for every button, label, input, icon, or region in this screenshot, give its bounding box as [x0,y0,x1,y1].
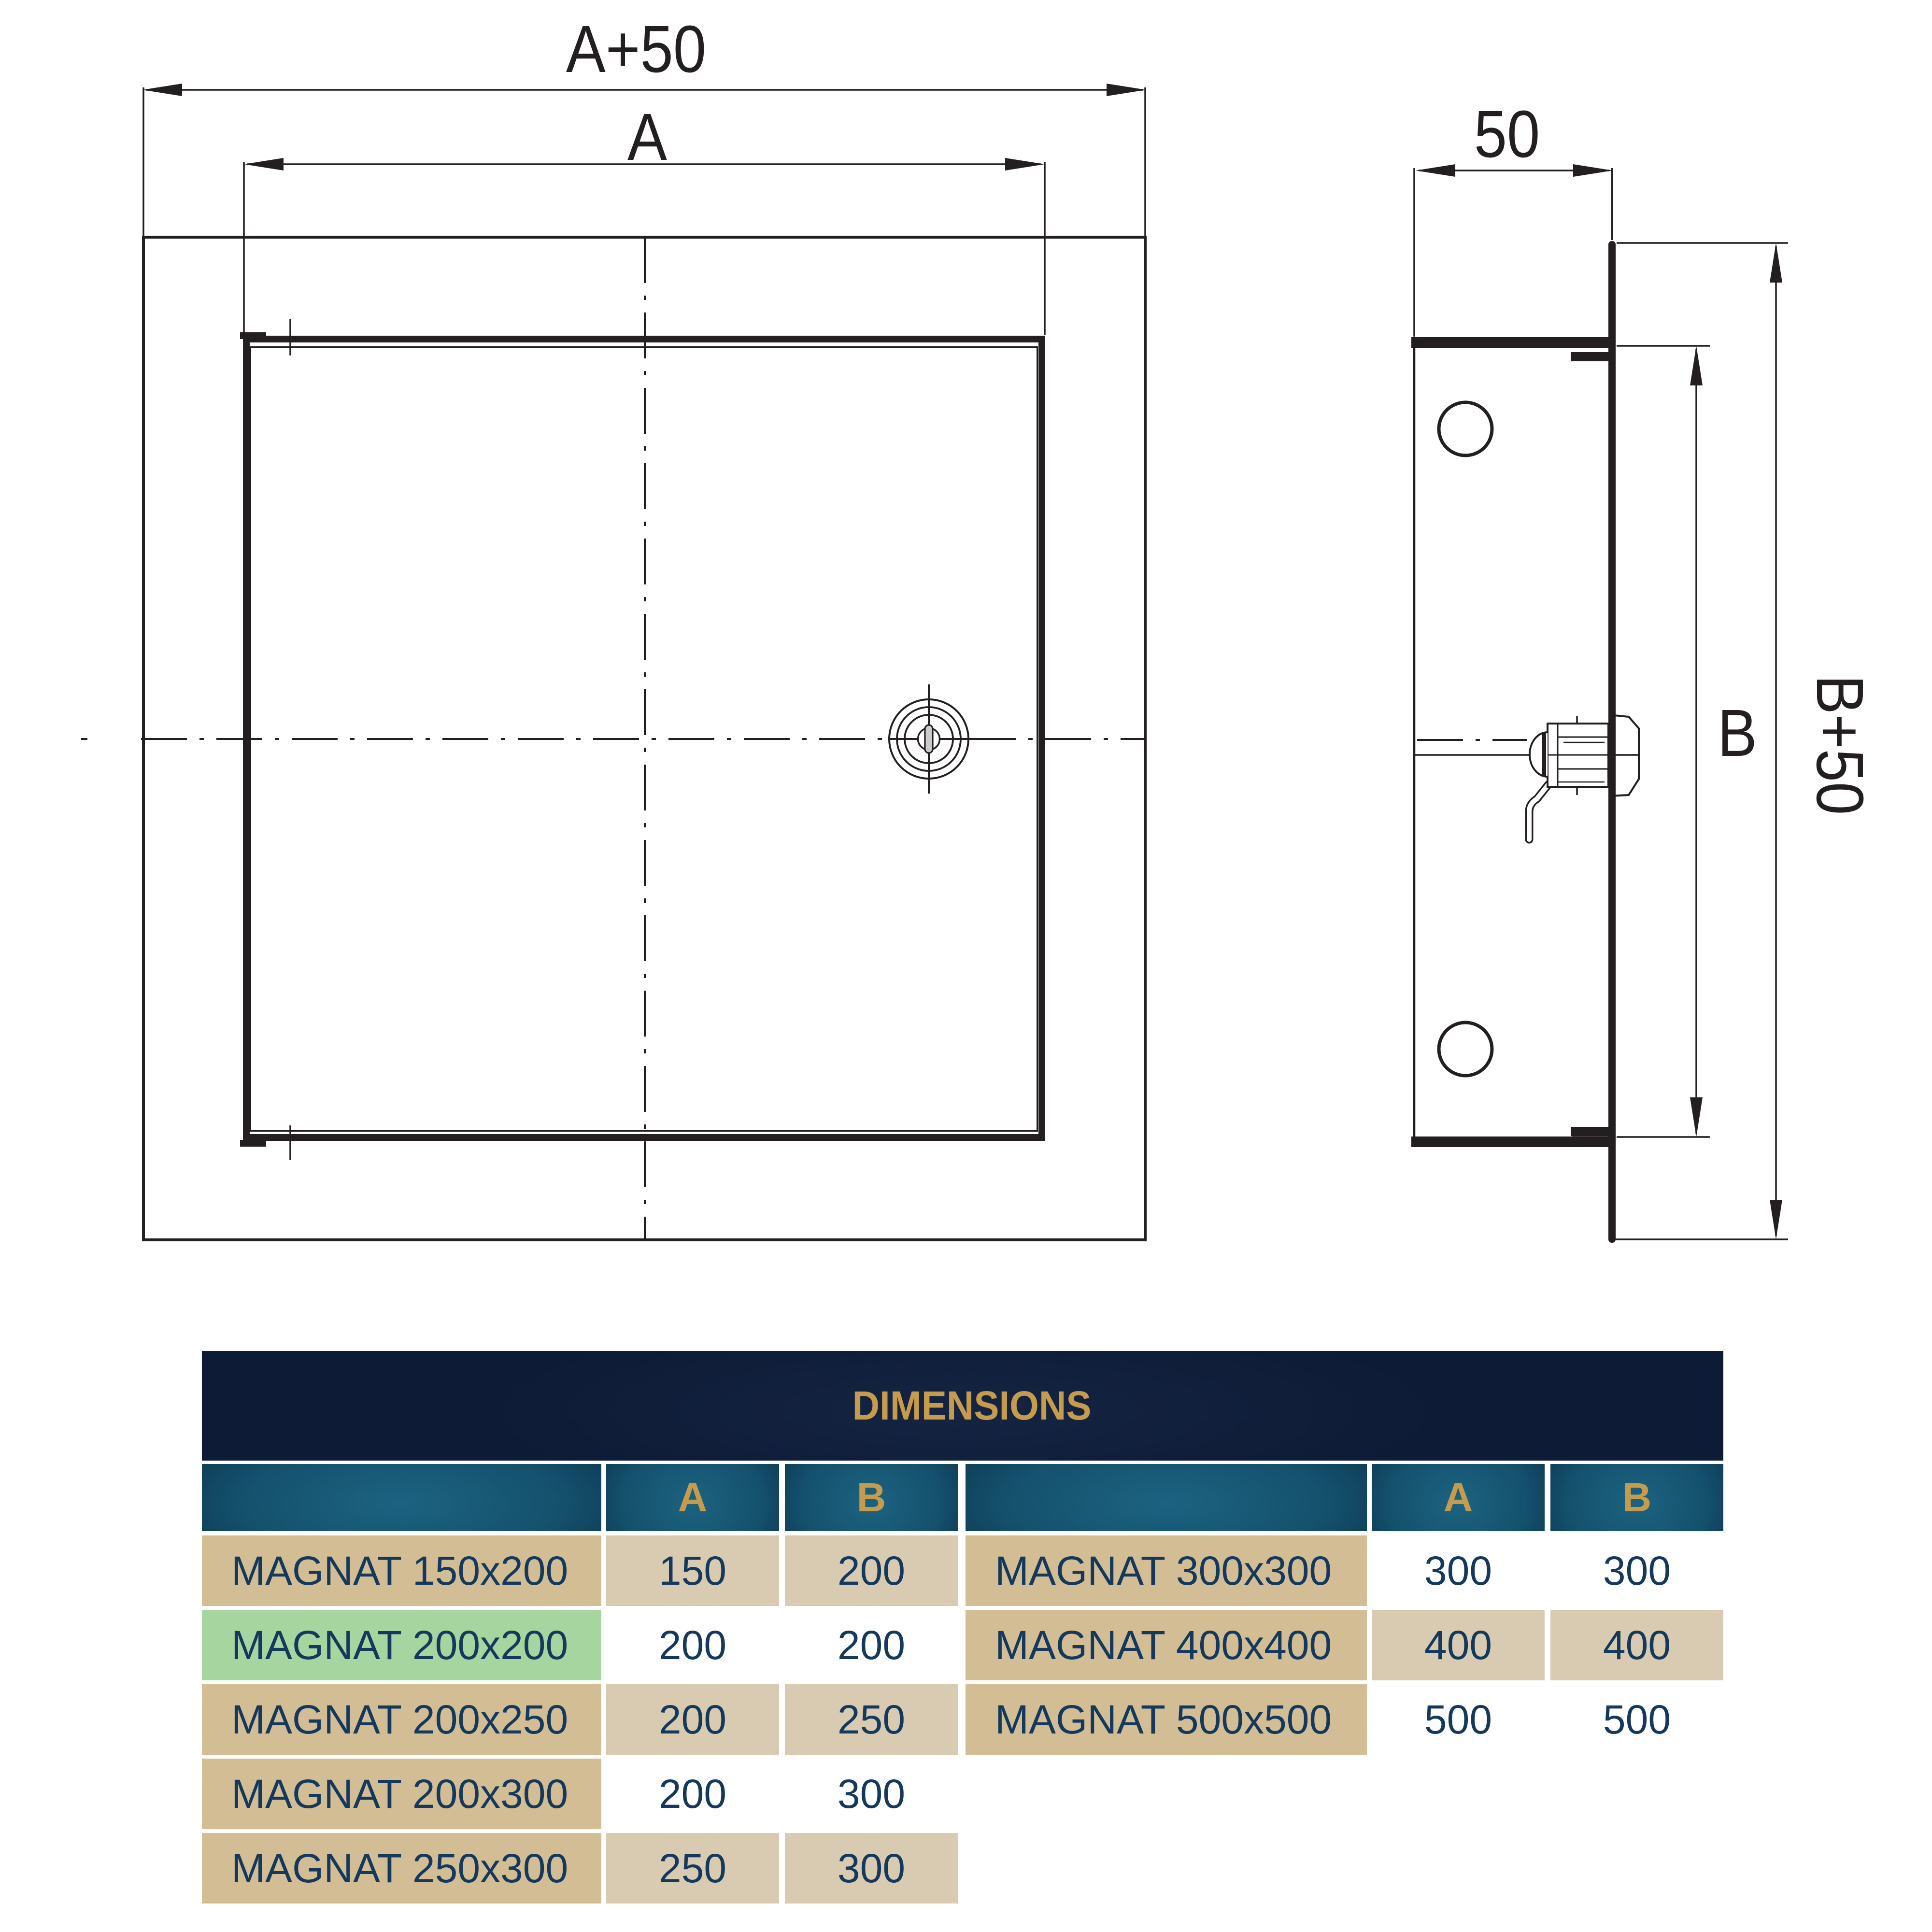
svg-text:B: B [1718,696,1757,770]
svg-text:B+50: B+50 [1803,675,1877,815]
svg-text:A+50: A+50 [566,12,706,86]
svg-text:A: A [627,99,667,174]
svg-text:50: 50 [1474,97,1540,171]
